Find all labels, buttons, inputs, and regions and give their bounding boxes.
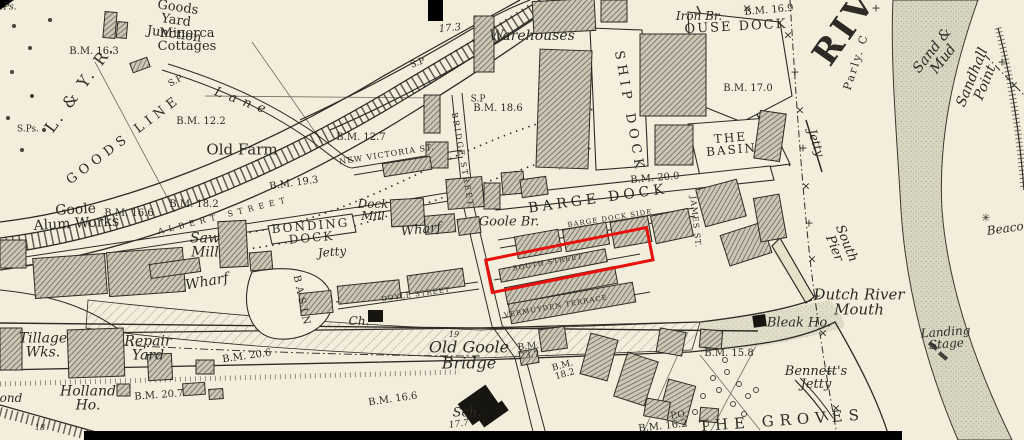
label-bm-12-2: B.M. 12.2 bbox=[176, 117, 225, 127]
label-dock-mill: Dock Mill bbox=[358, 198, 389, 222]
boundary-mark: + bbox=[790, 66, 799, 79]
boundary-mark: + bbox=[871, 2, 880, 15]
label-wharf-east: Wharf bbox=[400, 221, 442, 238]
label-river-ouse: RIV bbox=[807, 0, 883, 72]
label-bm-18-2-south: B.M. 18.2 bbox=[551, 359, 577, 382]
label-bm-16-3: B.M. 16.3 bbox=[69, 47, 118, 57]
label-17-3: 17.3 bbox=[438, 23, 461, 35]
boundary-mark: × bbox=[818, 327, 827, 340]
label-goods-line: GOODS LINE bbox=[64, 93, 184, 188]
label-vermuyden-terrace: VERMUYDEN TERRACE bbox=[504, 294, 609, 319]
label-wharf-west: Wharf bbox=[184, 271, 229, 293]
label-bm-16-6: B.M. 16.6 bbox=[104, 209, 153, 219]
label-sp-3: S.P bbox=[471, 95, 486, 104]
boundary-mark: × bbox=[831, 402, 840, 415]
label-church: Ch. bbox=[349, 315, 370, 327]
label-sp-1: S.P bbox=[167, 74, 184, 89]
label-ps: Ps. bbox=[3, 3, 16, 12]
label-ship-dock: SHIP DOCK bbox=[612, 50, 647, 174]
label-bm-20-6: B.M. 20.6 bbox=[222, 349, 272, 366]
label-bennetts-jetty: Bennett's Jetty bbox=[785, 365, 847, 392]
label-tillage-wks: Tillage Wks. bbox=[19, 332, 67, 361]
label-repair-yard: Repair Yard bbox=[124, 335, 171, 364]
label-bonding-dock: BONDING DOCK bbox=[271, 216, 351, 247]
label-jetty-right: Jetty bbox=[806, 128, 826, 159]
label-bm-20-7: B.M. 20.7 bbox=[134, 389, 184, 403]
label-bm-20-0: B.M. 20.0 bbox=[630, 172, 680, 186]
label-holland-ho: Holland Ho. bbox=[60, 385, 116, 414]
label-sandhall-point: Sandhall Point bbox=[954, 46, 1004, 114]
label-iron-br: Iron Br. bbox=[676, 10, 722, 22]
map-canvas[interactable]: Ps.Minorca CottagesGoods Yard JunctionB.… bbox=[0, 0, 1024, 440]
label-bm-12-7: B.M. 12.7 bbox=[336, 133, 385, 143]
label-dutch-river-mouth: Dutch River Mouth bbox=[813, 288, 904, 319]
label-sps: S.Ps. bbox=[17, 125, 39, 134]
label-minorca-cottages: Minorca Cottages bbox=[158, 27, 217, 54]
label-bm-19-3: B.M. 19.3 bbox=[269, 176, 319, 193]
label-19: 19 bbox=[449, 331, 459, 339]
label-old-farm: Old Farm bbox=[206, 142, 277, 157]
boundary-mark: × bbox=[783, 29, 792, 42]
label-18: 18 bbox=[35, 424, 45, 432]
boundary-mark: + bbox=[997, 56, 1006, 69]
boundary-mark: × bbox=[795, 104, 804, 117]
label-l-and-y-r: L. & Y. R. bbox=[42, 40, 117, 135]
boundary-mark: × bbox=[807, 253, 816, 266]
label-bm-16-9: B.M. 16.9 bbox=[744, 4, 794, 18]
label-goods-yard-junction: Goods Yard Junction bbox=[146, 0, 206, 44]
boundary-mark: + bbox=[812, 290, 821, 303]
label-barge-dock: BARGE DOCK bbox=[527, 182, 668, 216]
label-south-pier: South Pier bbox=[820, 223, 859, 269]
boundary-mark: ✳ bbox=[981, 212, 990, 225]
label-james-st: JAMES ST. bbox=[688, 196, 702, 249]
label-new-victoria-st: NEW VICTORIA ST. bbox=[339, 143, 435, 166]
label-goole-alum-works: Goole Alum Works bbox=[33, 201, 120, 234]
boundary-mark: + bbox=[804, 217, 813, 230]
label-warehouses: Warehouses bbox=[489, 29, 575, 43]
label-bm-23-7: B.M. 23.7 bbox=[517, 342, 540, 362]
label-the-basin: THE BASIN bbox=[705, 130, 758, 159]
label-sand-and-mud: Sand & Mud bbox=[900, 12, 975, 97]
label-bridge-street: BRIDGE STREET bbox=[450, 112, 475, 208]
boundary-mark: × bbox=[1009, 79, 1018, 92]
label-lane: Lane bbox=[212, 85, 273, 118]
label-goole-br: Goole Br. bbox=[479, 215, 540, 228]
label-basin: BASIN bbox=[290, 274, 311, 329]
label-bm-15-8: B.M. 15.8 bbox=[704, 349, 753, 359]
map-labels-layer: Ps.Minorca CottagesGoods Yard JunctionB.… bbox=[0, 0, 1024, 440]
label-17-7: 17.7 bbox=[448, 419, 469, 431]
label-doyle-street: DOYLE STREET bbox=[381, 287, 451, 304]
label-sp-2: S.P bbox=[409, 57, 426, 71]
label-saw-mill: Saw Mill bbox=[190, 232, 220, 261]
label-parly: Parly. C bbox=[842, 32, 871, 91]
label-bm-18-2: B.M. 18.2 bbox=[169, 200, 218, 210]
boundary-mark: × bbox=[742, 2, 751, 15]
label-landing-stage: Landing Stage bbox=[906, 323, 986, 353]
label-school: Sch. bbox=[453, 406, 482, 419]
label-albert-street: ALBERT STREET bbox=[157, 196, 290, 237]
label-bm-18-6: B.M. 18.6 bbox=[473, 104, 522, 114]
label-po: P.O. bbox=[670, 410, 688, 421]
label-bleak-ho: Bleak Ho. bbox=[767, 316, 831, 329]
scan-bottom-bar bbox=[84, 431, 902, 440]
boundary-mark: + bbox=[798, 142, 807, 155]
label-old-goole-bridge: Old Goole Bridge bbox=[429, 340, 509, 373]
label-bm-17-0: B.M. 17.0 bbox=[723, 84, 772, 94]
label-jetty-bonding: Jetty bbox=[317, 245, 346, 260]
boundary-mark: × bbox=[801, 180, 810, 193]
label-bm-16-6-south: B.M. 16.6 bbox=[368, 392, 418, 409]
boundary-mark: + bbox=[824, 365, 833, 378]
label-ouse-dock: OUSE DOCK bbox=[684, 18, 787, 37]
label-pond-partial: ond bbox=[0, 392, 22, 404]
label-beacon: Beacon bbox=[986, 219, 1024, 237]
